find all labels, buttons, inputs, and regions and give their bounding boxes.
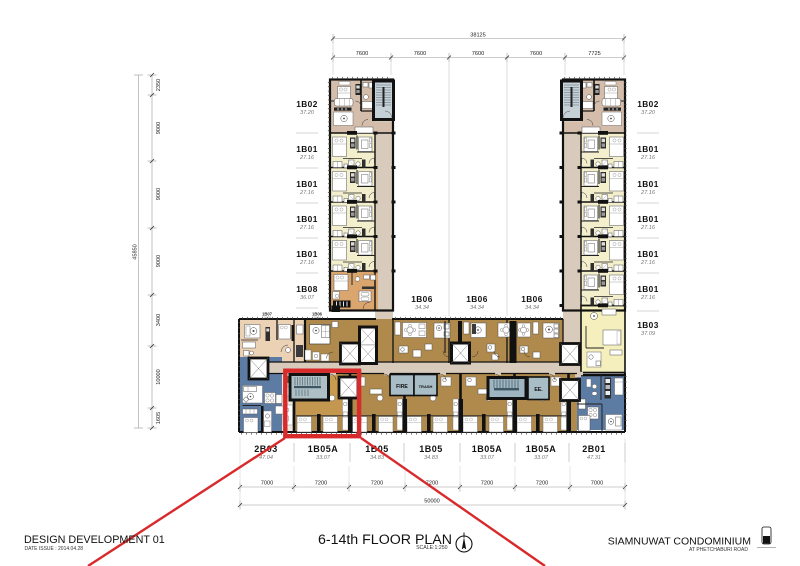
svg-text:AT PHETCHABURI ROAD: AT PHETCHABURI ROAD: [689, 547, 748, 553]
svg-text:10000: 10000: [156, 369, 162, 385]
svg-text:1B06: 1B06: [466, 294, 487, 304]
svg-text:7200: 7200: [315, 481, 327, 487]
svg-text:1B01: 1B01: [296, 179, 317, 189]
svg-text:DATE ISSUE : 2014.04.28: DATE ISSUE : 2014.04.28: [25, 546, 84, 552]
svg-text:34.34: 34.34: [415, 305, 429, 311]
svg-text:27.16: 27.16: [640, 155, 656, 161]
svg-text:1B02: 1B02: [296, 99, 317, 109]
svg-text:3400: 3400: [156, 314, 162, 326]
svg-text:7200: 7200: [536, 481, 548, 487]
svg-text:34.34: 34.34: [525, 305, 539, 311]
svg-text:9000: 9000: [156, 122, 162, 134]
svg-text:TRASH: TRASH: [419, 384, 433, 389]
svg-text:EE.: EE.: [534, 387, 543, 393]
svg-text:45850: 45850: [133, 244, 139, 260]
svg-text:1B08: 1B08: [296, 284, 317, 294]
svg-text:7000: 7000: [591, 481, 603, 487]
svg-text:7600: 7600: [472, 51, 484, 57]
svg-text:27.16: 27.16: [640, 225, 656, 231]
svg-text:47.04: 47.04: [259, 455, 273, 461]
svg-text:1B06: 1B06: [521, 294, 542, 304]
svg-text:27.16: 27.16: [640, 260, 656, 266]
svg-text:34.83: 34.83: [370, 455, 385, 461]
svg-text:24.04: 24.04: [262, 316, 271, 320]
svg-text:SCALE:1:250: SCALE:1:250: [416, 545, 448, 551]
svg-text:DESIGN DEVELOPMENT 01: DESIGN DEVELOPMENT 01: [24, 534, 165, 546]
svg-text:7000: 7000: [261, 481, 273, 487]
svg-text:27.16: 27.16: [299, 155, 315, 161]
svg-text:1B01: 1B01: [637, 179, 658, 189]
svg-text:2350: 2350: [156, 79, 162, 91]
svg-text:7200: 7200: [371, 481, 383, 487]
svg-text:SIAMNUWAT CONDOMINIUM: SIAMNUWAT CONDOMINIUM: [608, 536, 751, 548]
svg-text:37.20: 37.20: [641, 110, 656, 116]
svg-text:1B01: 1B01: [296, 144, 317, 154]
svg-text:1B01: 1B01: [637, 284, 658, 294]
svg-text:37.20: 37.20: [300, 110, 315, 116]
svg-text:34.34: 34.34: [470, 305, 484, 311]
svg-text:7600: 7600: [356, 51, 368, 57]
svg-text:1B05A: 1B05A: [472, 444, 503, 454]
svg-text:50000: 50000: [424, 499, 440, 505]
svg-text:27.16: 27.16: [640, 295, 656, 301]
svg-text:1B01: 1B01: [637, 214, 658, 224]
svg-text:1B06: 1B06: [411, 294, 432, 304]
svg-text:1B02: 1B02: [637, 99, 658, 109]
svg-text:34.83: 34.83: [424, 455, 439, 461]
svg-text:36.07: 36.07: [300, 295, 315, 301]
svg-text:27.16: 27.16: [299, 190, 315, 196]
svg-text:27.16: 27.16: [299, 225, 315, 231]
svg-text:27.16: 27.16: [299, 260, 315, 266]
svg-text:7600: 7600: [414, 51, 426, 57]
svg-text:2B01: 2B01: [582, 444, 606, 454]
svg-text:47.31: 47.31: [587, 455, 601, 461]
svg-text:27.16: 27.16: [640, 190, 656, 196]
svg-text:33.07: 33.07: [316, 455, 331, 461]
svg-text:1B05A: 1B05A: [308, 444, 339, 454]
svg-text:7725: 7725: [588, 51, 600, 57]
svg-text:1605: 1605: [156, 412, 162, 424]
svg-text:1B01: 1B01: [296, 214, 317, 224]
svg-text:1B05A: 1B05A: [526, 444, 557, 454]
svg-text:37.09: 37.09: [641, 331, 655, 337]
svg-text:9000: 9000: [156, 255, 162, 267]
svg-text:9000: 9000: [156, 188, 162, 200]
svg-text:7200: 7200: [481, 481, 493, 487]
svg-text:1B03: 1B03: [637, 320, 658, 330]
svg-text:1B05: 1B05: [419, 444, 443, 454]
svg-text:38125: 38125: [470, 33, 486, 39]
svg-text:7600: 7600: [530, 51, 542, 57]
svg-text:34.34: 34.34: [313, 316, 321, 320]
svg-text:33.07: 33.07: [534, 455, 549, 461]
svg-text:33.07: 33.07: [480, 455, 495, 461]
svg-text:FIRE: FIRE: [396, 384, 408, 390]
svg-text:1B01: 1B01: [637, 249, 658, 259]
svg-text:1B01: 1B01: [637, 144, 658, 154]
svg-text:1B01: 1B01: [296, 249, 317, 259]
